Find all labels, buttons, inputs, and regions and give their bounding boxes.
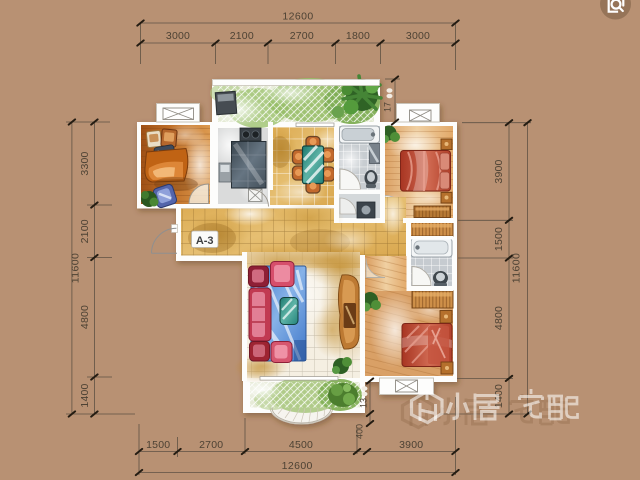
svg-text:13: 13 bbox=[359, 398, 369, 408]
svg-text:4800: 4800 bbox=[79, 305, 91, 329]
svg-text:1500: 1500 bbox=[493, 227, 505, 251]
svg-text:3300: 3300 bbox=[79, 151, 91, 175]
svg-text:12600: 12600 bbox=[282, 460, 313, 472]
svg-text:11600: 11600 bbox=[70, 253, 82, 283]
svg-text:2100: 2100 bbox=[79, 219, 91, 243]
svg-text:400: 400 bbox=[355, 424, 365, 439]
svg-text:2100: 2100 bbox=[230, 30, 254, 42]
svg-text:11600: 11600 bbox=[511, 253, 523, 283]
svg-text:17: 17 bbox=[383, 102, 393, 112]
svg-text:3900: 3900 bbox=[493, 159, 505, 183]
svg-text:12600: 12600 bbox=[282, 11, 313, 23]
svg-text:4500: 4500 bbox=[289, 439, 313, 451]
svg-text:1500: 1500 bbox=[146, 439, 170, 451]
svg-text:A-3: A-3 bbox=[196, 235, 214, 247]
svg-text:4800: 4800 bbox=[493, 306, 505, 330]
svg-text:3000: 3000 bbox=[166, 30, 190, 42]
svg-text:1800: 1800 bbox=[346, 30, 370, 42]
svg-text:3000: 3000 bbox=[406, 30, 430, 42]
svg-text:2700: 2700 bbox=[199, 439, 223, 451]
svg-text:3900: 3900 bbox=[399, 439, 423, 451]
svg-text:2700: 2700 bbox=[290, 30, 314, 42]
svg-text:1400: 1400 bbox=[79, 383, 91, 407]
